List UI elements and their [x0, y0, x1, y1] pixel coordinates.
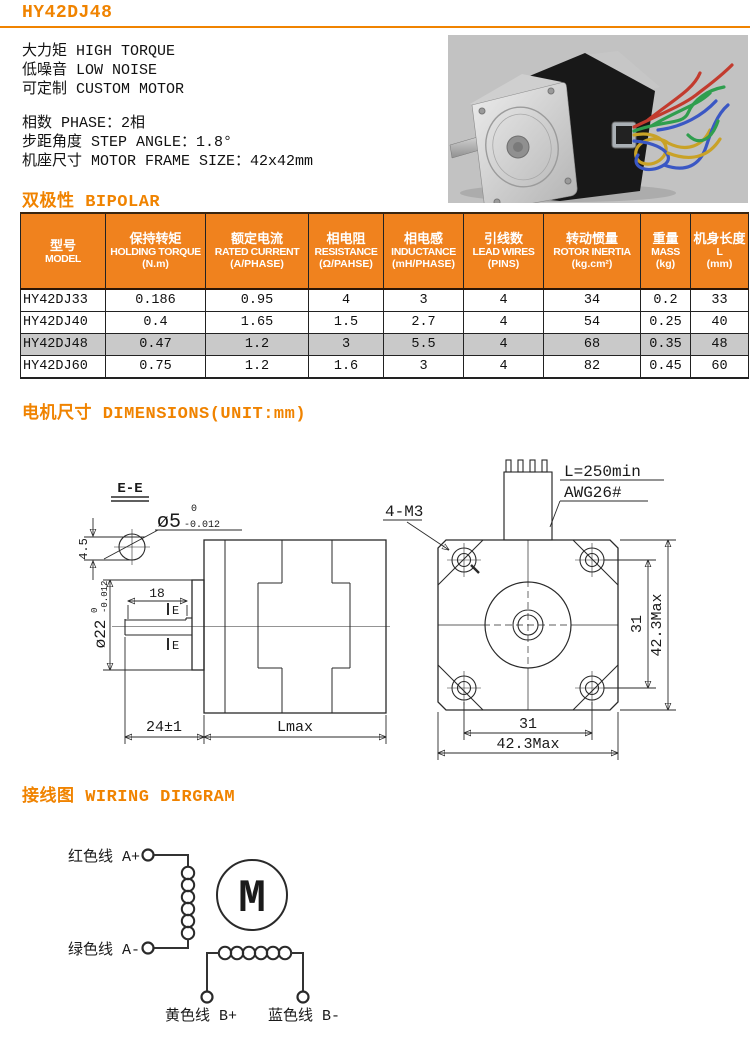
- terminal-b-minus: [298, 992, 309, 1003]
- spec-table: 型号MODEL 保持转矩HOLDING TORQUE(N.m) 额定电流RATE…: [20, 212, 749, 379]
- wire-b-plus: [207, 953, 219, 991]
- col-header-lead-wires: 引线数LEAD WIRES(PINS): [464, 213, 544, 289]
- dim-text: L=250min: [564, 463, 641, 481]
- cell-value: 4: [464, 334, 544, 356]
- cell-value: 82: [544, 356, 641, 379]
- dim-text: 31: [629, 615, 646, 633]
- col-header-holding-torque: 保持转矩HOLDING TORQUE(N.m): [106, 213, 206, 289]
- side-view: E-E ø5 0 -0.012: [77, 481, 390, 744]
- feature-line: 低噪音 LOW NOISE: [22, 61, 184, 80]
- cell-value: 2.7: [384, 312, 464, 334]
- cell-value: 4: [309, 289, 384, 312]
- dim-text: ø5: [157, 511, 181, 534]
- table-row: HY42DJ60 0.75 1.2 1.6 3 4 82 0.45 60: [21, 356, 749, 379]
- col-header-model: 型号MODEL: [21, 213, 106, 289]
- lead-cable: [504, 460, 552, 540]
- dim-text: 18: [149, 586, 165, 601]
- section-title-dimensions: 电机尺寸 DIMENSIONS(UNIT:mm): [22, 398, 306, 424]
- cell-value: 48: [691, 334, 749, 356]
- section-cut-markers: E E: [168, 603, 179, 653]
- section-label: E-E: [117, 481, 142, 497]
- cable-annotation: L=250min AWG26#: [550, 463, 664, 527]
- motor-symbol: M: [238, 873, 266, 925]
- col-header-length: 机身长度L(mm): [691, 213, 749, 289]
- boss-dimension: ø22 0 -0.012: [90, 580, 192, 670]
- cell-value: 1.2: [206, 334, 309, 356]
- cell-value: 4: [464, 312, 544, 334]
- cell-value: 0.35: [641, 334, 691, 356]
- terminal-label-a-plus: 红色线 A+: [68, 848, 140, 866]
- cell-value: 0.75: [106, 356, 206, 379]
- dim-text: -0.012: [184, 520, 220, 531]
- product-photo: [448, 35, 748, 203]
- dim-text: 31: [519, 716, 537, 733]
- spec-line: 机座尺寸 MOTOR FRAME SIZE：42x42mm: [22, 152, 313, 171]
- dim-text: Lmax: [277, 719, 313, 736]
- dim-text: 24±1: [146, 719, 182, 736]
- cell-value: 5.5: [384, 334, 464, 356]
- cell-value: 1.65: [206, 312, 309, 334]
- page-title: HY42DJ48: [22, 3, 112, 23]
- terminal-a-minus: [143, 943, 154, 954]
- feature-line: 可定制 CUSTOM MOTOR: [22, 80, 184, 99]
- datasheet-page: HY42DJ48 大力矩 HIGH TORQUE 低噪音 LOW NOISE 可…: [0, 0, 750, 1044]
- table-row: HY42DJ40 0.4 1.65 1.5 2.7 4 54 0.25 40: [21, 312, 749, 334]
- cell-value: 1.6: [309, 356, 384, 379]
- cell-model: HY42DJ60: [21, 356, 106, 379]
- table-header-row: 型号MODEL 保持转矩HOLDING TORQUE(N.m) 额定电流RATE…: [21, 213, 749, 289]
- wiring-diagram: 红色线 A+ 绿色线 A- M 黄色线 B+ 蓝色线 B-: [0, 830, 750, 1040]
- cell-value: 3: [309, 334, 384, 356]
- wire-a-plus: [154, 855, 188, 867]
- cell-value: 1.2: [206, 356, 309, 379]
- dim-text: 0: [191, 504, 197, 515]
- centerlines: [438, 540, 618, 710]
- terminal-b-plus: [202, 992, 213, 1003]
- table-row-highlighted: HY42DJ48 0.47 1.2 3 5.5 4 68 0.35 48: [21, 334, 749, 356]
- col-header-inductance: 相电感INDUCTANCE(mH/PHASE): [384, 213, 464, 289]
- dim-text: AWG26#: [564, 484, 622, 502]
- horizontal-dimensions: 31 42.3Max: [438, 702, 618, 760]
- wire-b-minus: [291, 953, 303, 991]
- cell-value: 4: [464, 356, 544, 379]
- terminal-a-plus: [143, 850, 154, 861]
- cell-value: 3: [384, 289, 464, 312]
- dim-text: 42.3Max: [649, 593, 666, 656]
- cell-value: 60: [691, 356, 749, 379]
- wire-a-minus: [154, 939, 188, 948]
- terminal-label-b-plus: 黄色线 B+: [165, 1007, 237, 1025]
- terminal-label-a-minus: 绿色线 A-: [68, 941, 140, 959]
- mount-hole-annotation: 4-M3: [383, 503, 479, 573]
- cell-value: 40: [691, 312, 749, 334]
- front-view: L=250min AWG26# 4-M3 31: [383, 460, 676, 760]
- col-header-rotor-inertia: 转动惯量ROTOR INERTIA(kg.cm²): [544, 213, 641, 289]
- cell-value: 33: [691, 289, 749, 312]
- cell-value: 0.45: [641, 356, 691, 379]
- coil-phase-a: [182, 867, 194, 939]
- cell-value: 1.5: [309, 312, 384, 334]
- dim-text: 42.3Max: [496, 736, 559, 753]
- cell-value: 0.186: [106, 289, 206, 312]
- col-header-mass: 重量MASS(kg): [641, 213, 691, 289]
- cell-value: 4: [464, 289, 544, 312]
- cell-value: 3: [384, 356, 464, 379]
- dim-text: E: [172, 639, 179, 653]
- flat-dimension: 4.5: [77, 518, 133, 580]
- length-dimensions: 24±1 Lmax: [125, 637, 386, 744]
- dim-text: 4.5: [77, 538, 91, 560]
- cell-value: 54: [544, 312, 641, 334]
- section-title-bipolar: 双极性 BIPOLAR: [22, 186, 160, 212]
- cell-value: 0.47: [106, 334, 206, 356]
- cell-model: HY42DJ48: [21, 334, 106, 356]
- dim-text: E: [172, 604, 179, 618]
- cell-value: 0.2: [641, 289, 691, 312]
- cell-value: 0.25: [641, 312, 691, 334]
- cell-value: 68: [544, 334, 641, 356]
- feature-list: 大力矩 HIGH TORQUE 低噪音 LOW NOISE 可定制 CUSTOM…: [22, 42, 184, 99]
- terminal-label-b-minus: 蓝色线 B-: [268, 1007, 340, 1025]
- cell-value: 34: [544, 289, 641, 312]
- coil-phase-b: [219, 947, 291, 959]
- cell-value: 0.4: [106, 312, 206, 334]
- section-title-wiring: 接线图 WIRING DIRGRAM: [22, 781, 235, 807]
- col-header-resistance: 相电阻RESISTANCE(Ω/PAHSE): [309, 213, 384, 289]
- cell-model: HY42DJ40: [21, 312, 106, 334]
- feature-line: 大力矩 HIGH TORQUE: [22, 42, 184, 61]
- dimension-drawing: E-E ø5 0 -0.012: [0, 430, 750, 775]
- dim-text: 4-M3: [385, 503, 423, 521]
- spec-list: 相数 PHASE：2相 步距角度 STEP ANGLE：1.8° 机座尺寸 MO…: [22, 114, 313, 171]
- dim-text: 0: [90, 608, 100, 613]
- spec-line: 相数 PHASE：2相: [22, 114, 313, 133]
- dim-text: -0.012: [100, 581, 110, 613]
- title-rule: [0, 26, 750, 28]
- cell-model: HY42DJ33: [21, 289, 106, 312]
- shaft-diameter-label: ø5 0 -0.012: [157, 504, 220, 534]
- spec-line: 步距角度 STEP ANGLE：1.8°: [22, 133, 313, 152]
- cell-value: 0.95: [206, 289, 309, 312]
- table-row: HY42DJ33 0.186 0.95 4 3 4 34 0.2 33: [21, 289, 749, 312]
- dim-text: ø22: [92, 620, 110, 649]
- col-header-rated-current: 额定电流RATED CURRENT(A/PHASE): [206, 213, 309, 289]
